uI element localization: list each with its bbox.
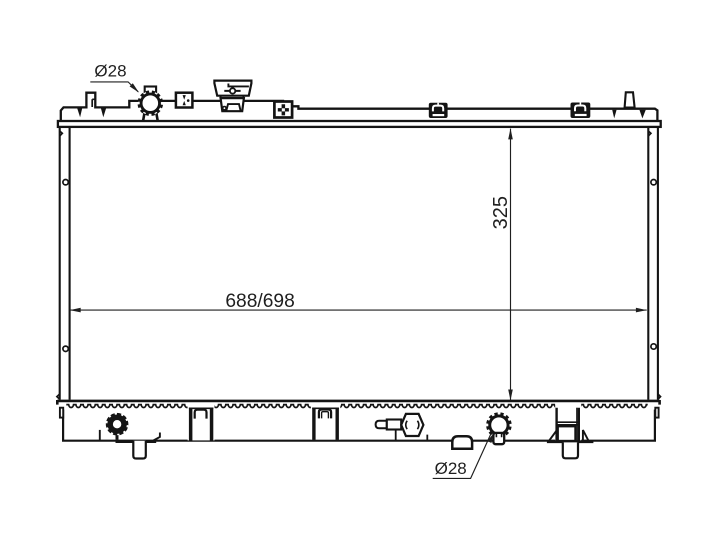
svg-text:688/698: 688/698	[225, 291, 294, 312]
svg-text:Ø28: Ø28	[94, 62, 126, 81]
svg-text:325: 325	[490, 196, 512, 229]
svg-text:Ø28: Ø28	[435, 459, 467, 478]
